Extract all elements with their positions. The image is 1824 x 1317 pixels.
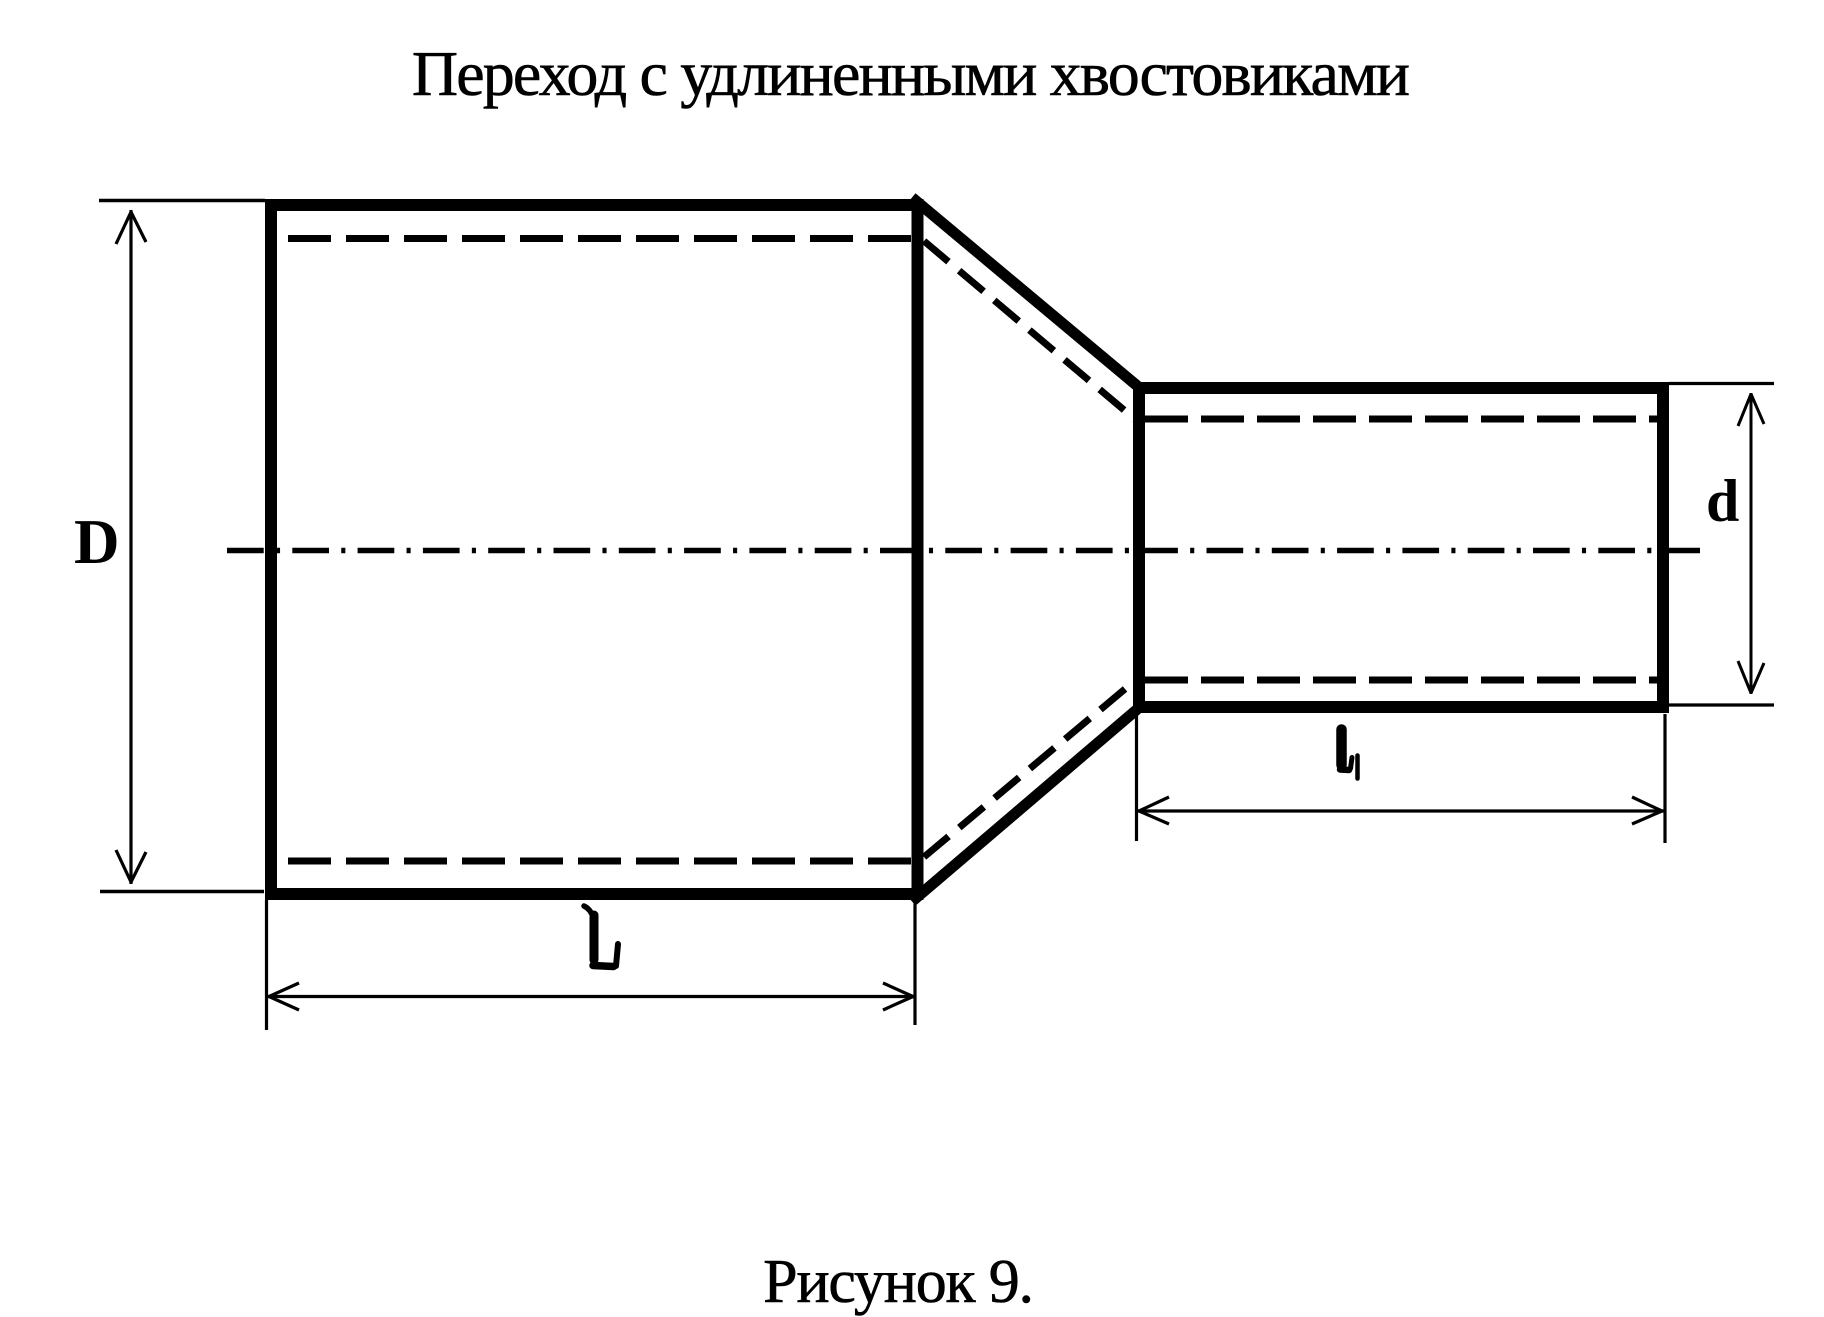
svg-text:Переход с удлиненными хвостови: Переход с удлиненными хвостовиками xyxy=(412,38,1409,109)
svg-text:Рисунок 9.: Рисунок 9. xyxy=(763,1248,1033,1316)
svg-text:D: D xyxy=(74,507,120,577)
svg-text:d: d xyxy=(1706,468,1739,534)
